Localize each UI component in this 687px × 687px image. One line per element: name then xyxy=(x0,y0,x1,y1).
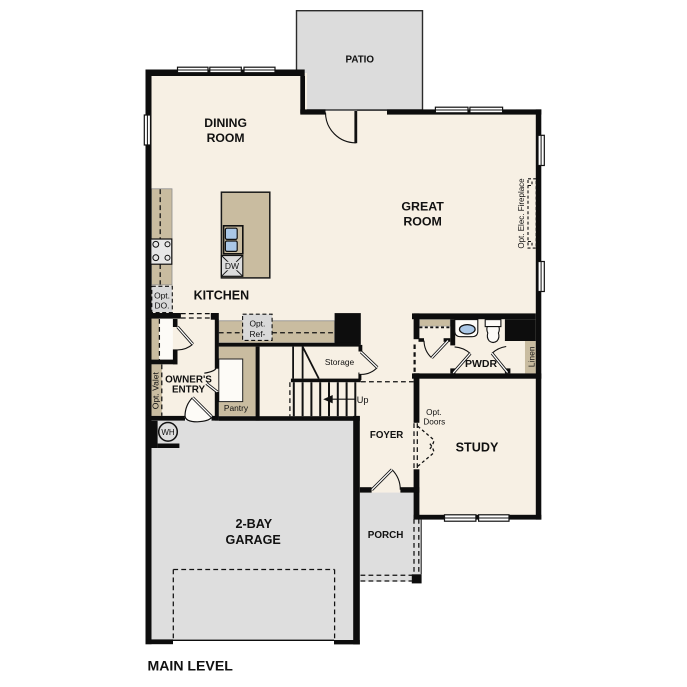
svg-text:PWDR: PWDR xyxy=(465,358,497,370)
svg-text:ENTRY: ENTRY xyxy=(172,384,206,395)
svg-text:Opt. Valet: Opt. Valet xyxy=(151,371,161,409)
svg-text:Ref-: Ref- xyxy=(249,329,265,339)
svg-text:2-BAY: 2-BAY xyxy=(235,517,272,531)
svg-text:KITCHEN: KITCHEN xyxy=(194,289,250,303)
svg-text:Pantry: Pantry xyxy=(224,403,249,413)
svg-text:Doors: Doors xyxy=(423,418,445,427)
svg-text:Storage: Storage xyxy=(325,357,355,367)
svg-text:GARAGE: GARAGE xyxy=(226,533,281,547)
svg-text:MAIN LEVEL: MAIN LEVEL xyxy=(148,658,234,674)
svg-text:Opt. Elec. Fireplace: Opt. Elec. Fireplace xyxy=(517,178,526,249)
svg-text:PATIO: PATIO xyxy=(346,55,375,66)
svg-text:DINING: DINING xyxy=(204,116,247,130)
svg-text:GREAT: GREAT xyxy=(401,199,444,213)
svg-text:Opt.: Opt. xyxy=(249,319,265,329)
svg-text:Up: Up xyxy=(357,395,369,405)
svg-text:DW: DW xyxy=(225,261,239,271)
svg-text:Linen: Linen xyxy=(526,346,536,367)
svg-text:WH: WH xyxy=(161,428,175,437)
svg-text:FOYER: FOYER xyxy=(370,430,403,441)
svg-text:STUDY: STUDY xyxy=(456,441,499,455)
svg-text:Opt.: Opt. xyxy=(426,408,441,417)
svg-text:ROOM: ROOM xyxy=(403,214,442,228)
svg-text:ROOM: ROOM xyxy=(207,131,245,145)
svg-text:DO.: DO. xyxy=(155,301,170,311)
svg-text:PORCH: PORCH xyxy=(368,530,404,541)
svg-text:Opt.: Opt. xyxy=(154,290,170,300)
